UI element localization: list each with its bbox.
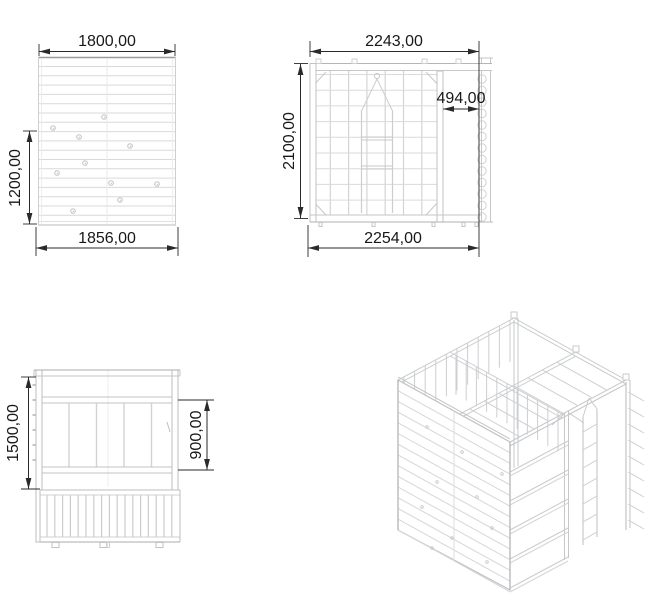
dimension-left-height: 2100,00 (281, 64, 308, 219)
dimension-left-height: 1200,00 (7, 131, 37, 224)
dim-label-2243: 2243,00 (365, 33, 423, 50)
dimension-right-height: 900,00 (178, 400, 214, 470)
dim-label-1800: 1800,00 (78, 33, 136, 50)
dim-label-2100: 2100,00 (281, 112, 298, 170)
isometric-structure (398, 312, 644, 592)
dimension-bottom-width: 2254,00 (308, 225, 479, 257)
dim-label-2254: 2254,00 (364, 230, 422, 247)
hanging-swing (362, 73, 393, 213)
view-side-elevation: 2243,00 2100,00 494,00 2254,00 (280, 0, 525, 280)
view-front-lower: 1500,00 900,00 (0, 352, 235, 594)
view-front-climbing-wall: 1800,00 1200,00 1856,00 (0, 0, 240, 280)
left-post-rungs (33, 385, 37, 460)
dimension-inner-width: 494,00 (437, 90, 486, 109)
climbing-net (316, 71, 437, 215)
frame-posts-and-beams (310, 59, 492, 227)
dimension-left-height: 1500,00 (5, 377, 40, 489)
fence-panel (40, 490, 180, 548)
dim-label-494: 494,00 (437, 90, 486, 107)
rope-ladder (583, 398, 597, 545)
dim-label-1200: 1200,00 (7, 149, 24, 207)
climbing-wall-panel (38, 57, 176, 225)
dimension-bottom-width: 1856,00 (36, 227, 178, 256)
dim-label-1500: 1500,00 (5, 404, 22, 462)
mid-dividers (69, 403, 152, 467)
isometric-climbing-wall (398, 377, 510, 592)
dim-label-900: 900,00 (188, 410, 205, 459)
dimension-top-width: 1800,00 (39, 33, 175, 56)
view-isometric (372, 292, 650, 594)
dim-label-1856: 1856,00 (78, 230, 136, 247)
monkey-bar-rungs (470, 362, 607, 437)
side-wall-strip (478, 58, 493, 222)
